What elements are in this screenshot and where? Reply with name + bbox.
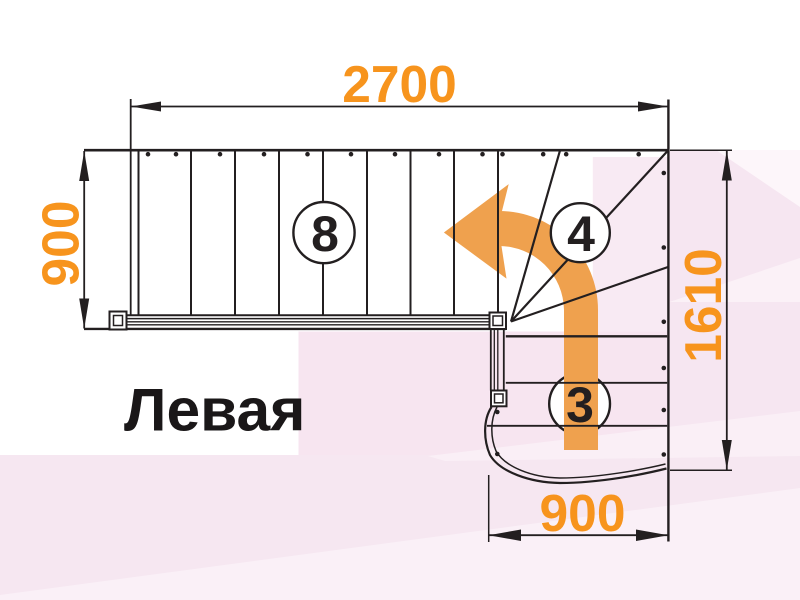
svg-text:1610: 1610 — [674, 248, 732, 363]
svg-text:4: 4 — [567, 206, 595, 262]
svg-text:3: 3 — [566, 377, 594, 433]
svg-text:900: 900 — [540, 484, 626, 542]
svg-text:2700: 2700 — [342, 55, 457, 113]
svg-text:Левая: Левая — [124, 375, 305, 443]
svg-text:900: 900 — [31, 201, 89, 287]
svg-text:8: 8 — [311, 206, 339, 262]
